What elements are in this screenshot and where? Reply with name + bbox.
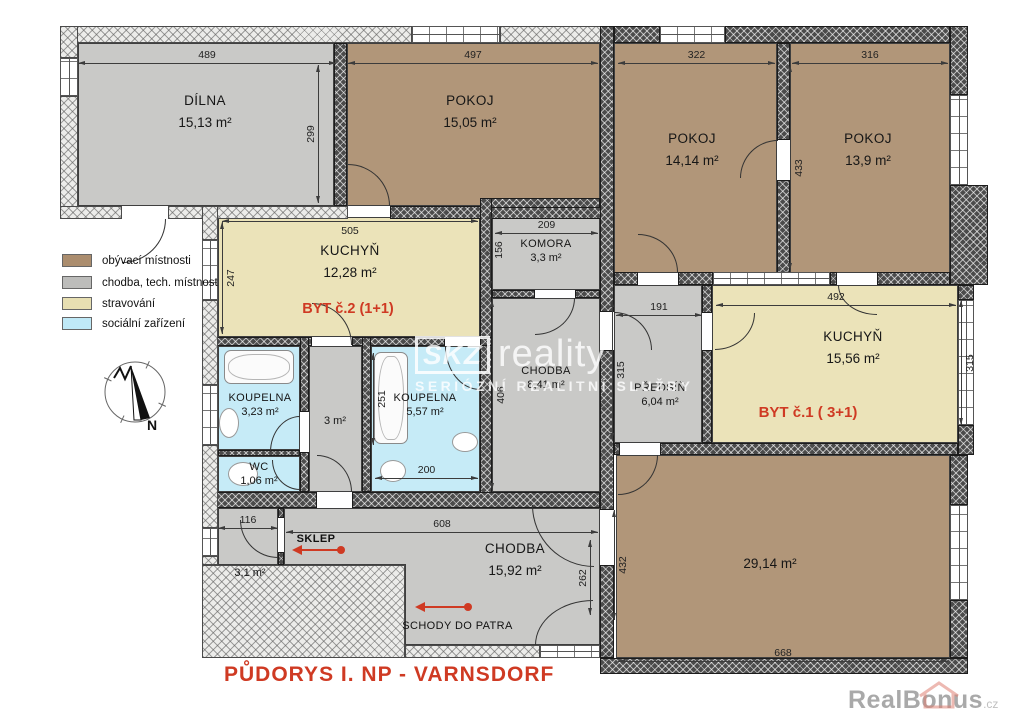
- dimension: 433: [790, 65, 791, 270]
- wall: [777, 43, 790, 140]
- legend-item-obyvaci: obývací místnosti: [62, 254, 191, 267]
- label-kuchyn-1228: KUCHYŇ 12,28 m²: [280, 240, 420, 283]
- legend-item-socialni: sociální zařízení: [62, 317, 185, 330]
- wall: [60, 96, 78, 212]
- dimension: 315: [961, 300, 962, 425]
- wall: [278, 552, 284, 565]
- dimension: 191: [616, 315, 702, 316]
- wall: [492, 290, 535, 298]
- window: [60, 58, 78, 96]
- wall: [202, 492, 317, 508]
- sink-icon: [452, 432, 478, 452]
- wall: [278, 508, 284, 518]
- label-koupelna-323: KOUPELNA 3,23 m²: [200, 392, 320, 420]
- dimension: 251: [373, 353, 374, 445]
- label-pokoj-139: POKOJ 13,9 m²: [798, 128, 938, 171]
- window: [202, 528, 218, 556]
- dimension: 156: [490, 212, 491, 288]
- dimension: 116: [218, 528, 278, 529]
- wall: [575, 290, 600, 298]
- compass-north-icon: N: [98, 360, 176, 434]
- legend-swatch-gray: [62, 276, 92, 289]
- wall: [202, 300, 218, 385]
- wall: [958, 285, 974, 300]
- legend-swatch-blue: [62, 317, 92, 330]
- label-predsin: PŘEDSÍŇ 6,04 m²: [600, 382, 720, 410]
- dimension: 316: [792, 63, 948, 64]
- dimension: 489: [78, 63, 336, 64]
- label-sklep-area: 3,1 m²: [215, 567, 285, 581]
- wall: [678, 272, 713, 285]
- wall: [202, 337, 312, 346]
- dimension: 432: [614, 510, 615, 620]
- label-dilna: DÍLNA 15,13 m²: [135, 90, 275, 133]
- legend-item-stravovani: stravování: [62, 297, 155, 310]
- wall: [702, 285, 712, 313]
- dimension: 497: [348, 63, 598, 64]
- wall: [480, 337, 492, 346]
- label-pokoj-1414: POKOJ 14,14 m²: [622, 128, 762, 171]
- wall: [950, 455, 968, 505]
- window: [950, 95, 968, 185]
- wall: [958, 425, 974, 455]
- wall: [60, 26, 412, 43]
- floor-plan: DÍLNA 15,13 m² POKOJ 15,05 m² POKOJ 14,1…: [0, 0, 1024, 724]
- window: [713, 272, 830, 285]
- wall: [660, 443, 958, 455]
- window: [950, 505, 968, 600]
- dimension: 608: [286, 532, 598, 533]
- wall: [202, 556, 218, 565]
- dimension: 406: [492, 300, 493, 490]
- wall: [500, 26, 614, 43]
- dimension: 668: [618, 661, 948, 662]
- wall: [777, 180, 790, 273]
- wall: [614, 272, 638, 285]
- label-byt2: BYT č.2 (1+1): [283, 301, 413, 317]
- schody-direction-arrow: [417, 606, 469, 608]
- label-3m: 3 m²: [305, 415, 365, 429]
- window: [540, 645, 600, 658]
- wall: [614, 443, 620, 455]
- wall: [725, 26, 950, 43]
- wall: [877, 272, 950, 285]
- wall: [600, 26, 614, 312]
- dimension: 247: [222, 222, 223, 334]
- dimension: 200: [375, 478, 478, 479]
- wall: [168, 206, 348, 219]
- wall: [600, 565, 614, 658]
- wall: [202, 445, 218, 528]
- wall: [60, 206, 122, 219]
- window: [412, 26, 500, 43]
- label-pokoj-1505: POKOJ 15,05 m²: [400, 90, 540, 133]
- label-schody: SCHODY DO PATRA: [400, 620, 515, 632]
- label-wc: WC 1,06 m²: [218, 461, 300, 489]
- svg-text:N: N: [147, 417, 157, 433]
- label-sklep: SKLEP: [288, 533, 344, 545]
- label-2914: 29,14 m²: [700, 553, 840, 575]
- dimension: 505: [222, 221, 478, 222]
- sklep-direction-arrow: [294, 549, 342, 551]
- dimension: 299: [318, 65, 319, 203]
- wall: [950, 26, 968, 95]
- wall: [405, 645, 540, 658]
- legend-swatch-beige: [62, 297, 92, 310]
- dimension: 315: [612, 300, 613, 440]
- wall: [202, 206, 218, 240]
- wall: [950, 600, 968, 658]
- legend-swatch-brown: [62, 254, 92, 267]
- dimension: 209: [495, 233, 598, 234]
- wall: [830, 272, 837, 285]
- window: [202, 240, 218, 300]
- page-title: PŮDORYS I. NP - VARNSDORF: [224, 663, 554, 687]
- wall: [950, 185, 988, 285]
- dimension: 492: [716, 305, 956, 306]
- label-chodba-1592: CHODBA 15,92 m²: [445, 538, 585, 581]
- wall: [300, 452, 309, 492]
- bathtub-icon: [224, 350, 294, 384]
- window: [660, 26, 725, 43]
- wall: [60, 26, 78, 58]
- label-byt1: BYT č.1 ( 3+1): [728, 404, 888, 421]
- legend-item-chodba: chodba, tech. místnost: [62, 276, 218, 289]
- label-kuchyn-1556: KUCHYŇ 15,56 m²: [783, 326, 923, 369]
- wall: [480, 198, 600, 208]
- dimension: 262: [590, 540, 591, 615]
- dimension: 322: [618, 63, 775, 64]
- house-icon: [916, 680, 962, 710]
- realbonus-credit: RealBonus .cz: [848, 686, 998, 715]
- wall: [334, 43, 347, 206]
- wall: [614, 26, 660, 43]
